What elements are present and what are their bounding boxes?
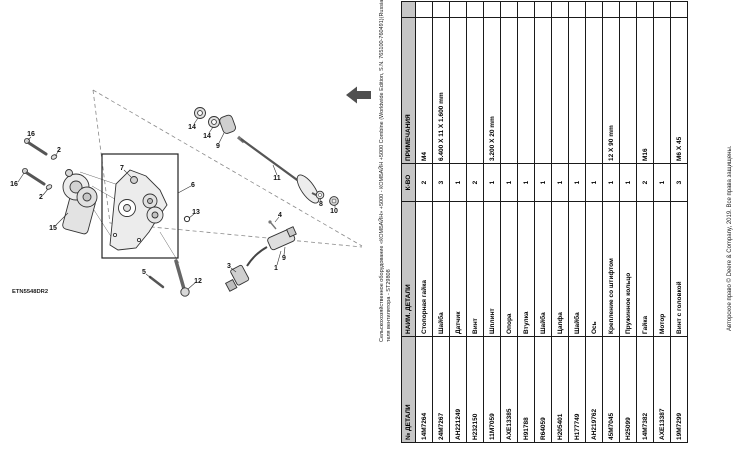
breadcrumb-line-2: теля вентилятора - ST29808	[386, 8, 393, 342]
drawing-code: ETN5548DR2	[12, 289, 48, 295]
notes-cell	[654, 18, 671, 164]
part-number-cell: 24M7267	[433, 337, 450, 443]
support-bracket	[110, 170, 167, 250]
part-number-cell: 14M7264	[416, 337, 433, 443]
table-row: H91788Втулка1	[518, 2, 535, 443]
copyright-notice: Авторское право © Deere & Company, 2019.…	[727, 136, 733, 331]
qty-cell: 2	[637, 164, 654, 202]
part-name-cell: Стопорная гайка	[416, 202, 433, 337]
qty-cell: 1	[484, 164, 501, 202]
table-row: AXE13387Мотор1	[654, 2, 671, 443]
top-washers	[195, 108, 237, 135]
callout-6: 6	[191, 182, 195, 189]
table-row: 19M7299Винт с головкой3M6 X 45	[671, 2, 688, 443]
part-number-cell: H205401	[552, 337, 569, 443]
table-row: 14M7382Гайка2M16	[637, 2, 654, 443]
breadcrumb: Сельскохозяйственное оборудование «КОМБА…	[379, 8, 393, 342]
notes-cell	[586, 18, 603, 164]
table-row: R64059Шайба1	[535, 2, 552, 443]
notes-cell	[620, 18, 637, 164]
motor	[62, 170, 97, 235]
spacer-cell	[518, 2, 535, 18]
callout-9: 9	[282, 255, 286, 262]
table-row: 11M7059Шплинт13.200 X 20 mm	[484, 2, 501, 443]
header-part-name: НАИМ. ДЕТАЛИ	[402, 202, 416, 337]
table-row: H205401Цапфа1	[552, 2, 569, 443]
header-spacer	[402, 2, 416, 18]
callout-4: 4	[278, 212, 282, 219]
qty-cell: 1	[569, 164, 586, 202]
table-row: H177749Шайба1	[569, 2, 586, 443]
callout-7: 7	[120, 165, 124, 172]
part-number-cell: H177749	[569, 337, 586, 443]
notes-cell	[450, 18, 467, 164]
qty-cell: 1	[552, 164, 569, 202]
spacer-cell	[569, 2, 586, 18]
spacer-cell	[450, 2, 467, 18]
spacer-cell	[637, 2, 654, 18]
qty-cell: 1	[518, 164, 535, 202]
callout-14: 14	[203, 133, 211, 140]
callout-2: 2	[57, 147, 61, 154]
part-number-cell: AH221249	[450, 337, 467, 443]
part-number-cell: H25099	[620, 337, 637, 443]
notes-cell: M16	[637, 18, 654, 164]
notes-cell	[501, 18, 518, 164]
qty-cell: 3	[433, 164, 450, 202]
callout-3: 3	[227, 263, 231, 270]
part-name-cell: Ось	[586, 202, 603, 337]
spacer-cell	[535, 2, 552, 18]
table-row: 45M7045Крепление со штифтом112 X 90 mm	[603, 2, 620, 443]
table-row: AH221249Датчик1	[450, 2, 467, 443]
part-name-cell: Винт с головкой	[671, 202, 688, 337]
pin-icon	[150, 261, 189, 296]
part-name-cell: Втулка	[518, 202, 535, 337]
callout-11: 11	[273, 175, 281, 182]
part-name-cell: Цапфа	[552, 202, 569, 337]
table-row: H25099Пружинное кольцо1	[620, 2, 637, 443]
table-row: AXE13385Опора1	[501, 2, 518, 443]
parts-catalog-page: 16 16 2 2 15 7 6 13 5 12 14 14 9 11 8 10…	[0, 0, 750, 450]
part-name-cell: Датчик	[450, 202, 467, 337]
callout-10: 10	[330, 208, 338, 215]
washer-icon	[45, 154, 57, 190]
parts-table: № ДЕТАЛИ НАИМ. ДЕТАЛИ К-ВО ПРИМЕЧАНИЯ 14…	[401, 1, 688, 443]
qty-cell: 2	[467, 164, 484, 202]
part-name-cell: Шайба	[433, 202, 450, 337]
spacer-cell	[586, 2, 603, 18]
part-number-cell: 14M7382	[637, 337, 654, 443]
callout-5: 5	[142, 269, 146, 276]
spacer-cell	[603, 2, 620, 18]
qty-cell: 1	[535, 164, 552, 202]
part-number-cell: 11M7059	[484, 337, 501, 443]
bolt-icon	[22, 138, 46, 184]
part-name-cell: Шайба	[535, 202, 552, 337]
callout-9: 9	[216, 143, 220, 150]
qty-cell: 2	[416, 164, 433, 202]
part-number-cell: H232150	[467, 337, 484, 443]
part-number-cell: 45M7045	[603, 337, 620, 443]
spacer-cell	[416, 2, 433, 18]
snap-ring-icon	[184, 216, 189, 221]
table-row: AH219762Ось1	[586, 2, 603, 443]
header-qty: К-ВО	[402, 164, 416, 202]
notes-cell: 3.200 X 20 mm	[484, 18, 501, 164]
callout-13: 13	[192, 209, 200, 216]
parts-table-container: № ДЕТАЛИ НАИМ. ДЕТАЛИ К-ВО ПРИМЕЧАНИЯ 14…	[401, 2, 671, 443]
table-row: 24M7267Шайба36.400 X 11 X 1.600 mm	[433, 2, 450, 443]
notes-cell	[518, 18, 535, 164]
part-number-cell: H91788	[518, 337, 535, 443]
part-number-cell: AXE13385	[501, 337, 518, 443]
spacer-cell	[467, 2, 484, 18]
notes-cell	[552, 18, 569, 164]
qty-cell: 1	[654, 164, 671, 202]
part-number-cell: AH219762	[586, 337, 603, 443]
callout-1: 1	[274, 265, 278, 272]
table-row: 14M7264Стопорная гайка2M4	[416, 2, 433, 443]
callout-16: 16	[27, 131, 35, 138]
part-name-cell: Пружинное кольцо	[620, 202, 637, 337]
spacer-cell	[501, 2, 518, 18]
breadcrumb-line-1: Сельскохозяйственное оборудование «КОМБА…	[379, 8, 386, 342]
notes-cell: M6 X 45	[671, 18, 688, 164]
qty-cell: 1	[603, 164, 620, 202]
part-name-cell: Гайка	[637, 202, 654, 337]
part-number-cell: AXE13387	[654, 337, 671, 443]
part-name-cell: Крепление со штифтом	[603, 202, 620, 337]
table-row: H232150Винт2	[467, 2, 484, 443]
part-name-cell: Винт	[467, 202, 484, 337]
part-name-cell: Опора	[501, 202, 518, 337]
part-number-cell: 19M7299	[671, 337, 688, 443]
qty-cell: 3	[671, 164, 688, 202]
notes-cell	[569, 18, 586, 164]
callout-labels: 16 16 2 2 15 7 6 13 5 12 14 14 9 11 8 10…	[10, 124, 338, 285]
table-header-row: № ДЕТАЛИ НАИМ. ДЕТАЛИ К-ВО ПРИМЕЧАНИЯ	[402, 2, 416, 443]
part-name-cell: Мотор	[654, 202, 671, 337]
callout-8: 8	[319, 201, 323, 208]
callout-16: 16	[10, 181, 18, 188]
shaft	[238, 137, 338, 206]
part-name-cell: Шайба	[569, 202, 586, 337]
callout-12: 12	[194, 278, 202, 285]
callout-14: 14	[188, 124, 196, 131]
qty-cell: 1	[586, 164, 603, 202]
qty-cell: 1	[620, 164, 637, 202]
spacer-cell	[671, 2, 688, 18]
notes-cell: M4	[416, 18, 433, 164]
qty-cell: 1	[450, 164, 467, 202]
qty-cell: 1	[501, 164, 518, 202]
spacer-cell	[433, 2, 450, 18]
part-number-cell: R64059	[535, 337, 552, 443]
callout-2: 2	[39, 194, 43, 201]
notes-cell: 12 X 90 mm	[603, 18, 620, 164]
spacer-cell	[484, 2, 501, 18]
notes-cell	[467, 18, 484, 164]
notes-cell	[535, 18, 552, 164]
part-name-cell: Шплинт	[484, 202, 501, 337]
spacer-cell	[552, 2, 569, 18]
back-arrow-icon[interactable]	[346, 87, 371, 104]
notes-cell: 6.400 X 11 X 1.600 mm	[433, 18, 450, 164]
exploded-parts-diagram: 16 16 2 2 15 7 6 13 5 12 14 14 9 11 8 10…	[0, 0, 400, 450]
header-notes: ПРИМЕЧАНИЯ	[402, 18, 416, 164]
header-part-number: № ДЕТАЛИ	[402, 337, 416, 443]
spacer-cell	[620, 2, 637, 18]
spacer-cell	[654, 2, 671, 18]
callout-15: 15	[49, 225, 57, 232]
